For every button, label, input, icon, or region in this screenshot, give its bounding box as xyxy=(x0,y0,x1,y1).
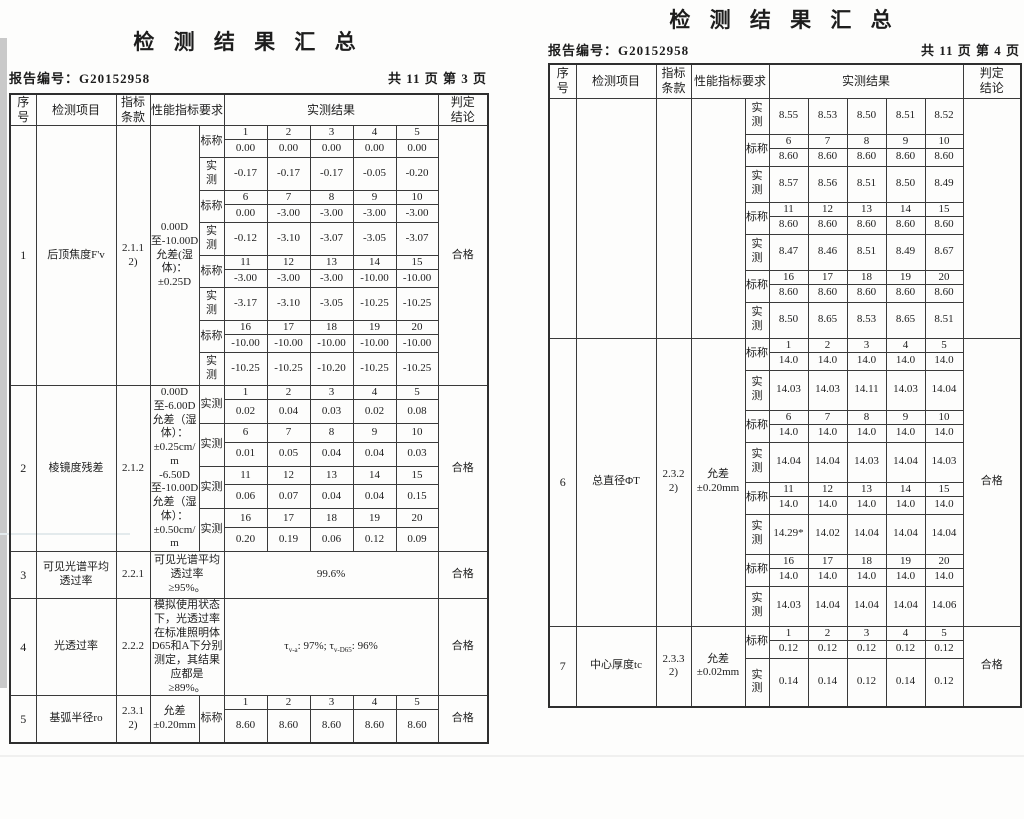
index-cell: 10 xyxy=(396,191,438,205)
page-indicator: 共 11 页 第 3 页 xyxy=(388,68,487,87)
value-cell: 14.0 xyxy=(886,568,925,586)
sublabel-cell: 实 测 xyxy=(745,442,769,482)
value-cell: 8.60 xyxy=(396,710,438,743)
index-cell: 19 xyxy=(886,554,925,568)
sublabel-cell: 实 测 xyxy=(745,586,769,626)
value-cell: 8.49 xyxy=(925,166,963,202)
index-cell: 11 xyxy=(769,482,808,496)
index-cell: 10 xyxy=(925,134,963,148)
index-cell: 19 xyxy=(886,270,925,284)
sublabel-cell: 实 测 xyxy=(745,302,769,338)
value-cell: 0.03 xyxy=(396,442,438,466)
requirement-cell: 0.00D 至-6.00D 允差（湿 体）： ±0.25cm/ m -6.50D… xyxy=(150,386,199,552)
index-cell: 9 xyxy=(886,134,925,148)
scanner-edge-artifact xyxy=(0,38,7,688)
value-cell: 0.00 xyxy=(267,140,310,158)
value-cell: 14.0 xyxy=(769,424,808,442)
value-cell: -3.07 xyxy=(396,223,438,256)
value-cell: -3.00 xyxy=(224,270,267,288)
requirement-cell: 模拟使用状态 下，光透过率 在标准照明体 D65和A下分别 测定，其结果 应都是… xyxy=(150,599,224,696)
result-cell: τv-a: 97%; τv-D65: 96% xyxy=(224,599,438,696)
value-cell: 8.67 xyxy=(925,234,963,270)
value-cell: 8.47 xyxy=(769,234,808,270)
value-cell: -10.25 xyxy=(353,353,396,386)
col-header-requirement: 性能指标要求 xyxy=(691,64,769,98)
value-cell: 0.04 xyxy=(310,442,353,466)
value-cell: -10.25 xyxy=(353,288,396,321)
value-cell: -3.00 xyxy=(267,270,310,288)
value-cell: 0.06 xyxy=(224,485,267,509)
value-cell: 8.46 xyxy=(808,234,847,270)
col-header-requirement: 性能指标要求 xyxy=(150,94,224,126)
value-cell: 0.12 xyxy=(847,640,886,658)
value-cell: 0.14 xyxy=(769,658,808,707)
index-cell: 3 xyxy=(310,696,353,710)
col-header-result: 实测结果 xyxy=(224,94,438,126)
seq-cell xyxy=(549,98,576,338)
value-cell: 0.04 xyxy=(353,485,396,509)
value-cell: 0.15 xyxy=(396,485,438,509)
value-cell: 8.53 xyxy=(808,98,847,134)
index-cell: 5 xyxy=(396,386,438,400)
value-cell: 14.0 xyxy=(847,352,886,370)
value-cell: 14.0 xyxy=(847,496,886,514)
item-cell xyxy=(576,98,656,338)
index-cell: 16 xyxy=(769,270,808,284)
value-cell: 0.12 xyxy=(353,528,396,552)
sublabel-cell: 实 测 xyxy=(745,658,769,707)
seq-cell: 1 xyxy=(10,126,36,386)
sublabel-cell: 标称 xyxy=(199,321,224,353)
requirement-cell: 允差 ±0.02mm xyxy=(691,626,745,707)
value-cell: 14.0 xyxy=(886,424,925,442)
value-cell: 8.60 xyxy=(353,710,396,743)
col-header-clause: 指标 条款 xyxy=(116,94,150,126)
value-cell: 8.60 xyxy=(769,284,808,302)
sublabel-cell: 标称 xyxy=(199,256,224,288)
sublabel-cell: 实 测 xyxy=(745,514,769,554)
index-cell: 4 xyxy=(353,386,396,400)
index-cell: 5 xyxy=(925,626,963,640)
sublabel-cell: 标称 xyxy=(745,554,769,586)
index-cell: 2 xyxy=(267,696,310,710)
seq-cell: 7 xyxy=(549,626,576,707)
sublabel-cell: 实测 xyxy=(199,509,224,552)
index-cell: 1 xyxy=(224,696,267,710)
index-cell: 14 xyxy=(886,202,925,216)
value-cell: -3.00 xyxy=(396,205,438,223)
value-cell: 14.0 xyxy=(886,352,925,370)
col-header-seq: 序 号 xyxy=(10,94,36,126)
value-cell: 8.50 xyxy=(769,302,808,338)
index-cell: 19 xyxy=(353,509,396,528)
index-cell: 13 xyxy=(310,466,353,485)
index-cell: 14 xyxy=(353,256,396,270)
value-cell: -10.00 xyxy=(310,335,353,353)
value-cell: -10.00 xyxy=(224,335,267,353)
index-cell: 9 xyxy=(886,410,925,424)
value-cell: -10.25 xyxy=(396,288,438,321)
value-cell: 8.51 xyxy=(925,302,963,338)
index-cell: 2 xyxy=(808,626,847,640)
value-cell: 8.65 xyxy=(808,302,847,338)
value-cell: 0.12 xyxy=(886,640,925,658)
item-cell: 棱镜度残差 xyxy=(36,386,116,552)
value-cell: -3.10 xyxy=(267,223,310,256)
value-cell: 8.60 xyxy=(886,216,925,234)
value-cell: 14.29* xyxy=(769,514,808,554)
index-cell: 1 xyxy=(224,386,267,400)
requirement-cell: 允差 ±0.20mm xyxy=(150,696,199,743)
index-cell: 17 xyxy=(808,554,847,568)
requirement-cell: 允差 ±0.20mm xyxy=(691,338,745,626)
result-cell: 99.6% xyxy=(224,552,438,599)
index-cell: 8 xyxy=(310,191,353,205)
index-cell: 13 xyxy=(847,202,886,216)
value-cell: 14.0 xyxy=(925,496,963,514)
value-cell: 14.0 xyxy=(769,496,808,514)
sublabel-cell: 实 测 xyxy=(745,370,769,410)
value-cell: 14.04 xyxy=(886,514,925,554)
index-cell: 5 xyxy=(925,338,963,352)
value-cell: 0.04 xyxy=(310,485,353,509)
value-cell: -3.10 xyxy=(267,288,310,321)
clause-cell: 2.2.2 xyxy=(116,599,150,696)
value-cell: 14.04 xyxy=(808,586,847,626)
sublabel-cell: 实 测 xyxy=(745,98,769,134)
value-cell: 8.60 xyxy=(224,710,267,743)
requirement-cell: 0.00D 至-10.00D 允差(湿 体)： ±0.25D xyxy=(150,126,199,386)
col-header-item: 检测项目 xyxy=(576,64,656,98)
value-cell: 8.55 xyxy=(769,98,808,134)
index-cell: 2 xyxy=(808,338,847,352)
value-cell: 0.05 xyxy=(267,442,310,466)
index-cell: 15 xyxy=(925,482,963,496)
value-cell: 0.08 xyxy=(396,400,438,424)
value-cell: 14.0 xyxy=(808,424,847,442)
sublabel-cell: 标称 xyxy=(745,626,769,658)
sublabel-cell: 实测 xyxy=(199,466,224,509)
index-cell: 20 xyxy=(925,270,963,284)
value-cell: -10.25 xyxy=(267,353,310,386)
index-cell: 19 xyxy=(353,321,396,335)
index-cell: 8 xyxy=(847,134,886,148)
value-cell: 14.04 xyxy=(847,586,886,626)
value-cell: 0.19 xyxy=(267,528,310,552)
value-cell: 14.0 xyxy=(925,424,963,442)
verdict-cell: 合格 xyxy=(438,552,488,599)
value-cell: 0.12 xyxy=(925,658,963,707)
value-cell: 14.0 xyxy=(808,496,847,514)
col-header-verdict: 判定 结论 xyxy=(438,94,488,126)
sublabel-cell: 标称 xyxy=(745,410,769,442)
value-cell: 14.04 xyxy=(847,514,886,554)
value-cell: -3.17 xyxy=(224,288,267,321)
index-cell: 18 xyxy=(847,554,886,568)
verdict-cell: 合格 xyxy=(438,386,488,552)
index-cell: 20 xyxy=(925,554,963,568)
value-cell: 8.52 xyxy=(925,98,963,134)
value-cell: 8.53 xyxy=(847,302,886,338)
index-cell: 14 xyxy=(886,482,925,496)
value-cell: 0.12 xyxy=(769,640,808,658)
value-cell: -10.00 xyxy=(353,270,396,288)
value-cell: -10.25 xyxy=(396,353,438,386)
index-cell: 11 xyxy=(769,202,808,216)
item-cell: 后顶焦度F'v xyxy=(36,126,116,386)
value-cell: -3.00 xyxy=(353,205,396,223)
value-cell: 8.60 xyxy=(925,216,963,234)
index-cell: 6 xyxy=(769,410,808,424)
seq-cell: 2 xyxy=(10,386,36,552)
sublabel-cell: 标称 xyxy=(745,270,769,302)
value-cell: 0.07 xyxy=(267,485,310,509)
value-cell: -10.00 xyxy=(396,270,438,288)
value-cell: 14.04 xyxy=(925,514,963,554)
value-cell: 8.51 xyxy=(847,166,886,202)
value-cell: 0.14 xyxy=(886,658,925,707)
value-cell: -0.17 xyxy=(267,158,310,191)
sublabel-cell: 实测 xyxy=(199,424,224,467)
sublabel-cell: 标称 xyxy=(745,202,769,234)
requirement-cell xyxy=(691,98,745,338)
value-cell: 8.50 xyxy=(886,166,925,202)
index-cell: 1 xyxy=(769,626,808,640)
index-cell: 12 xyxy=(808,482,847,496)
seq-cell: 6 xyxy=(549,338,576,626)
value-cell: 8.60 xyxy=(808,284,847,302)
item-cell: 总直径ΦT xyxy=(576,338,656,626)
sublabel-cell: 实 测 xyxy=(199,158,224,191)
index-cell: 17 xyxy=(267,321,310,335)
value-cell: 8.60 xyxy=(847,216,886,234)
value-cell: 8.51 xyxy=(847,234,886,270)
value-cell: 14.0 xyxy=(769,352,808,370)
value-cell: 14.0 xyxy=(769,568,808,586)
value-cell: 0.00 xyxy=(224,205,267,223)
verdict-cell xyxy=(963,98,1021,338)
report-number: 报告编号：G20152958 xyxy=(548,40,689,59)
index-cell: 8 xyxy=(310,424,353,443)
index-cell: 18 xyxy=(310,321,353,335)
value-cell: 14.0 xyxy=(808,352,847,370)
clause-cell: 2.3.3 2) xyxy=(656,626,691,707)
seq-cell: 3 xyxy=(10,552,36,599)
value-cell: 0.00 xyxy=(353,140,396,158)
index-cell: 4 xyxy=(886,338,925,352)
value-cell: 14.04 xyxy=(886,442,925,482)
col-header-seq: 序 号 xyxy=(549,64,576,98)
sublabel-cell: 实 测 xyxy=(745,166,769,202)
value-cell: 0.01 xyxy=(224,442,267,466)
value-cell: 0.02 xyxy=(353,400,396,424)
index-cell: 3 xyxy=(847,626,886,640)
sublabel-cell: 实 测 xyxy=(199,288,224,321)
value-cell: 0.20 xyxy=(224,528,267,552)
value-cell: 8.60 xyxy=(808,216,847,234)
page-title: 检 测 结 果 汇 总 xyxy=(9,26,487,56)
index-cell: 6 xyxy=(769,134,808,148)
value-cell: 8.65 xyxy=(886,302,925,338)
sublabel-cell: 实 测 xyxy=(745,234,769,270)
value-cell: 0.09 xyxy=(396,528,438,552)
value-cell: -0.12 xyxy=(224,223,267,256)
value-cell: 14.03 xyxy=(847,442,886,482)
index-cell: 7 xyxy=(808,410,847,424)
value-cell: 14.04 xyxy=(886,586,925,626)
sublabel-cell: 标称 xyxy=(745,338,769,370)
report-page-4: 检 测 结 果 汇 总 报告编号：G20152958 共 11 页 第 4 页 … xyxy=(548,0,1020,819)
index-cell: 6 xyxy=(224,424,267,443)
index-cell: 15 xyxy=(396,466,438,485)
index-cell: 18 xyxy=(847,270,886,284)
index-cell: 9 xyxy=(353,191,396,205)
index-cell: 17 xyxy=(267,509,310,528)
value-cell: 8.60 xyxy=(847,148,886,166)
value-cell: 8.60 xyxy=(808,148,847,166)
item-cell: 基弧半径ro xyxy=(36,696,116,743)
value-cell: 0.00 xyxy=(396,140,438,158)
report-page-3: 检 测 结 果 汇 总 报告编号：G20152958 共 11 页 第 3 页 … xyxy=(9,0,487,819)
index-cell: 17 xyxy=(808,270,847,284)
verdict-cell: 合格 xyxy=(438,696,488,743)
index-cell: 6 xyxy=(224,191,267,205)
sublabel-cell: 标称 xyxy=(199,696,224,743)
value-cell: 8.60 xyxy=(847,284,886,302)
clause-cell: 2.3.2 2) xyxy=(656,338,691,626)
page-title: 检 测 结 果 汇 总 xyxy=(548,4,1020,34)
col-header-result: 实测结果 xyxy=(769,64,963,98)
value-cell: -3.00 xyxy=(310,270,353,288)
value-cell: 14.03 xyxy=(769,586,808,626)
value-cell: 8.51 xyxy=(886,98,925,134)
index-cell: 16 xyxy=(224,509,267,528)
index-cell: 9 xyxy=(353,424,396,443)
value-cell: 14.03 xyxy=(808,370,847,410)
value-cell: 14.0 xyxy=(925,352,963,370)
value-cell: -0.17 xyxy=(224,158,267,191)
sublabel-cell: 实 测 xyxy=(199,353,224,386)
index-cell: 20 xyxy=(396,321,438,335)
sublabel-cell: 标称 xyxy=(199,191,224,223)
value-cell: 0.14 xyxy=(808,658,847,707)
value-cell: 0.12 xyxy=(808,640,847,658)
index-cell: 18 xyxy=(310,509,353,528)
index-cell: 8 xyxy=(847,410,886,424)
index-cell: 10 xyxy=(925,410,963,424)
sublabel-cell: 实测 xyxy=(199,386,224,424)
value-cell: 8.60 xyxy=(886,148,925,166)
clause-cell: 2.3.1 2) xyxy=(116,696,150,743)
value-cell: -10.00 xyxy=(353,335,396,353)
value-cell: -0.17 xyxy=(310,158,353,191)
value-cell: 8.60 xyxy=(310,710,353,743)
item-cell: 光透过率 xyxy=(36,599,116,696)
item-cell: 中心厚度tc xyxy=(576,626,656,707)
sublabel-cell: 实 测 xyxy=(199,223,224,256)
value-cell: 14.04 xyxy=(925,370,963,410)
index-cell: 7 xyxy=(267,424,310,443)
sublabel-cell: 标称 xyxy=(745,482,769,514)
value-cell: 14.04 xyxy=(808,442,847,482)
index-cell: 13 xyxy=(847,482,886,496)
value-cell: -10.00 xyxy=(396,335,438,353)
value-cell: -0.20 xyxy=(396,158,438,191)
value-cell: 8.60 xyxy=(267,710,310,743)
index-cell: 11 xyxy=(224,466,267,485)
index-cell: 14 xyxy=(353,466,396,485)
verdict-cell: 合格 xyxy=(438,599,488,696)
index-cell: 7 xyxy=(267,191,310,205)
col-header-item: 检测项目 xyxy=(36,94,116,126)
index-cell: 11 xyxy=(224,256,267,270)
index-cell: 16 xyxy=(769,554,808,568)
value-cell: 14.0 xyxy=(847,568,886,586)
value-cell: 8.60 xyxy=(769,148,808,166)
clause-cell: 2.1.2 xyxy=(116,386,150,552)
index-cell: 12 xyxy=(267,466,310,485)
index-cell: 4 xyxy=(886,626,925,640)
verdict-cell: 合格 xyxy=(963,626,1021,707)
value-cell: 0.12 xyxy=(847,658,886,707)
report-number: 报告编号：G20152958 xyxy=(9,68,150,87)
page-indicator: 共 11 页 第 4 页 xyxy=(921,40,1020,59)
value-cell: 8.60 xyxy=(925,148,963,166)
value-cell: 0.00 xyxy=(310,140,353,158)
value-cell: -0.05 xyxy=(353,158,396,191)
value-cell: -10.00 xyxy=(267,335,310,353)
index-cell: 16 xyxy=(224,321,267,335)
index-cell: 1 xyxy=(224,126,267,140)
index-cell: 12 xyxy=(267,256,310,270)
col-header-verdict: 判定 结论 xyxy=(963,64,1021,98)
value-cell: 8.56 xyxy=(808,166,847,202)
value-cell: -10.25 xyxy=(224,353,267,386)
index-cell: 2 xyxy=(267,126,310,140)
value-cell: 14.0 xyxy=(847,424,886,442)
value-cell: 14.04 xyxy=(769,442,808,482)
value-cell: 14.03 xyxy=(886,370,925,410)
index-cell: 13 xyxy=(310,256,353,270)
value-cell: -3.05 xyxy=(310,288,353,321)
requirement-cell: 可见光谱平均 透过率 ≥95%。 xyxy=(150,552,224,599)
index-cell: 15 xyxy=(396,256,438,270)
scanned-report-canvas: { "pages": [ { "title": "检 测 结 果 汇 总", "… xyxy=(0,0,1024,819)
index-cell: 10 xyxy=(396,424,438,443)
value-cell: 14.0 xyxy=(886,496,925,514)
value-cell: 14.02 xyxy=(808,514,847,554)
seq-cell: 5 xyxy=(10,696,36,743)
value-cell: -3.07 xyxy=(310,223,353,256)
index-cell: 20 xyxy=(396,509,438,528)
index-cell: 4 xyxy=(353,126,396,140)
index-cell: 2 xyxy=(267,386,310,400)
results-table-page4: 序 号 检测项目 指标 条款 性能指标要求 实测结果 判定 结论 实 测8.55… xyxy=(548,63,1022,708)
verdict-cell: 合格 xyxy=(438,126,488,386)
value-cell: -3.05 xyxy=(353,223,396,256)
item-cell: 可见光谱平均 透过率 xyxy=(36,552,116,599)
results-table-page3: 序 号 检测项目 指标 条款 性能指标要求 实测结果 判定 结论 1后顶焦度F'… xyxy=(9,93,489,744)
value-cell: 14.03 xyxy=(769,370,808,410)
index-cell: 5 xyxy=(396,126,438,140)
col-header-clause: 指标 条款 xyxy=(656,64,691,98)
value-cell: 8.60 xyxy=(769,216,808,234)
clause-cell: 2.1.1 2) xyxy=(116,126,150,386)
sublabel-cell: 标称 xyxy=(199,126,224,158)
value-cell: 0.00 xyxy=(224,140,267,158)
index-cell: 12 xyxy=(808,202,847,216)
index-cell: 7 xyxy=(808,134,847,148)
